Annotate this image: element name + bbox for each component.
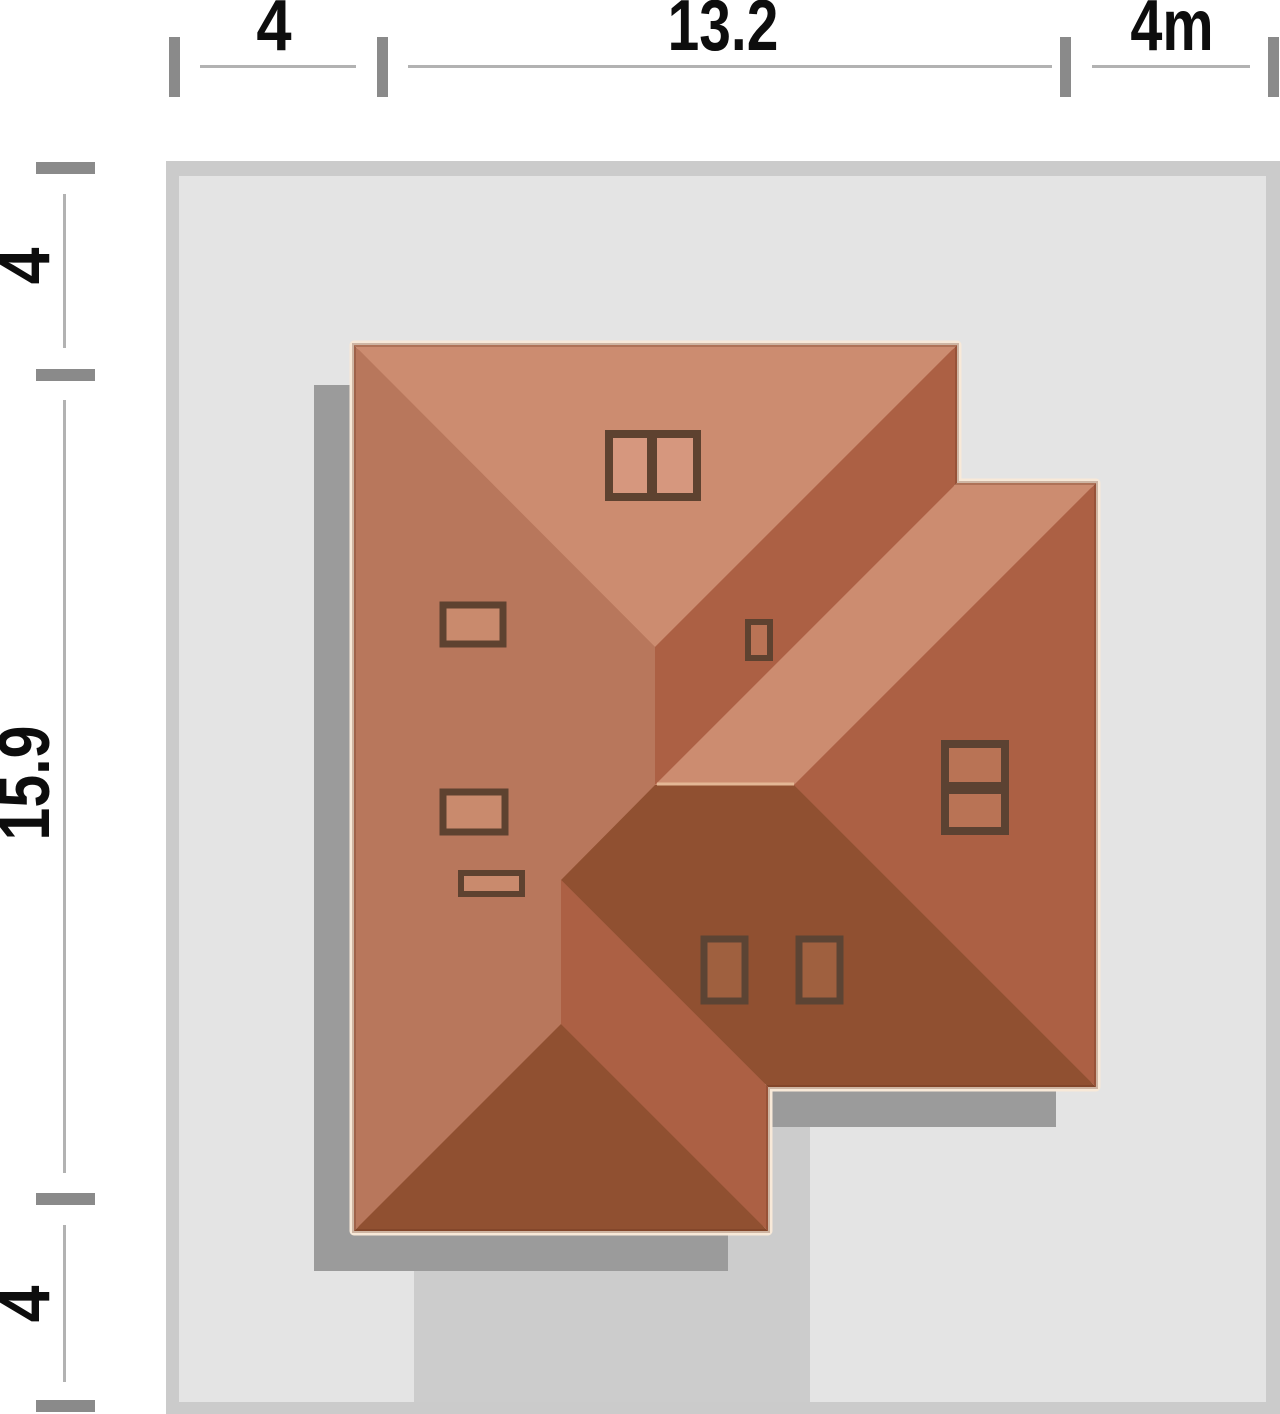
svg-text:4: 4	[256, 0, 292, 66]
svg-text:15.9: 15.9	[0, 726, 64, 841]
svg-text:13.2: 13.2	[668, 0, 779, 66]
svg-text:4: 4	[0, 1285, 65, 1322]
svg-text:4m: 4m	[1130, 0, 1213, 65]
svg-text:4: 4	[0, 247, 65, 284]
